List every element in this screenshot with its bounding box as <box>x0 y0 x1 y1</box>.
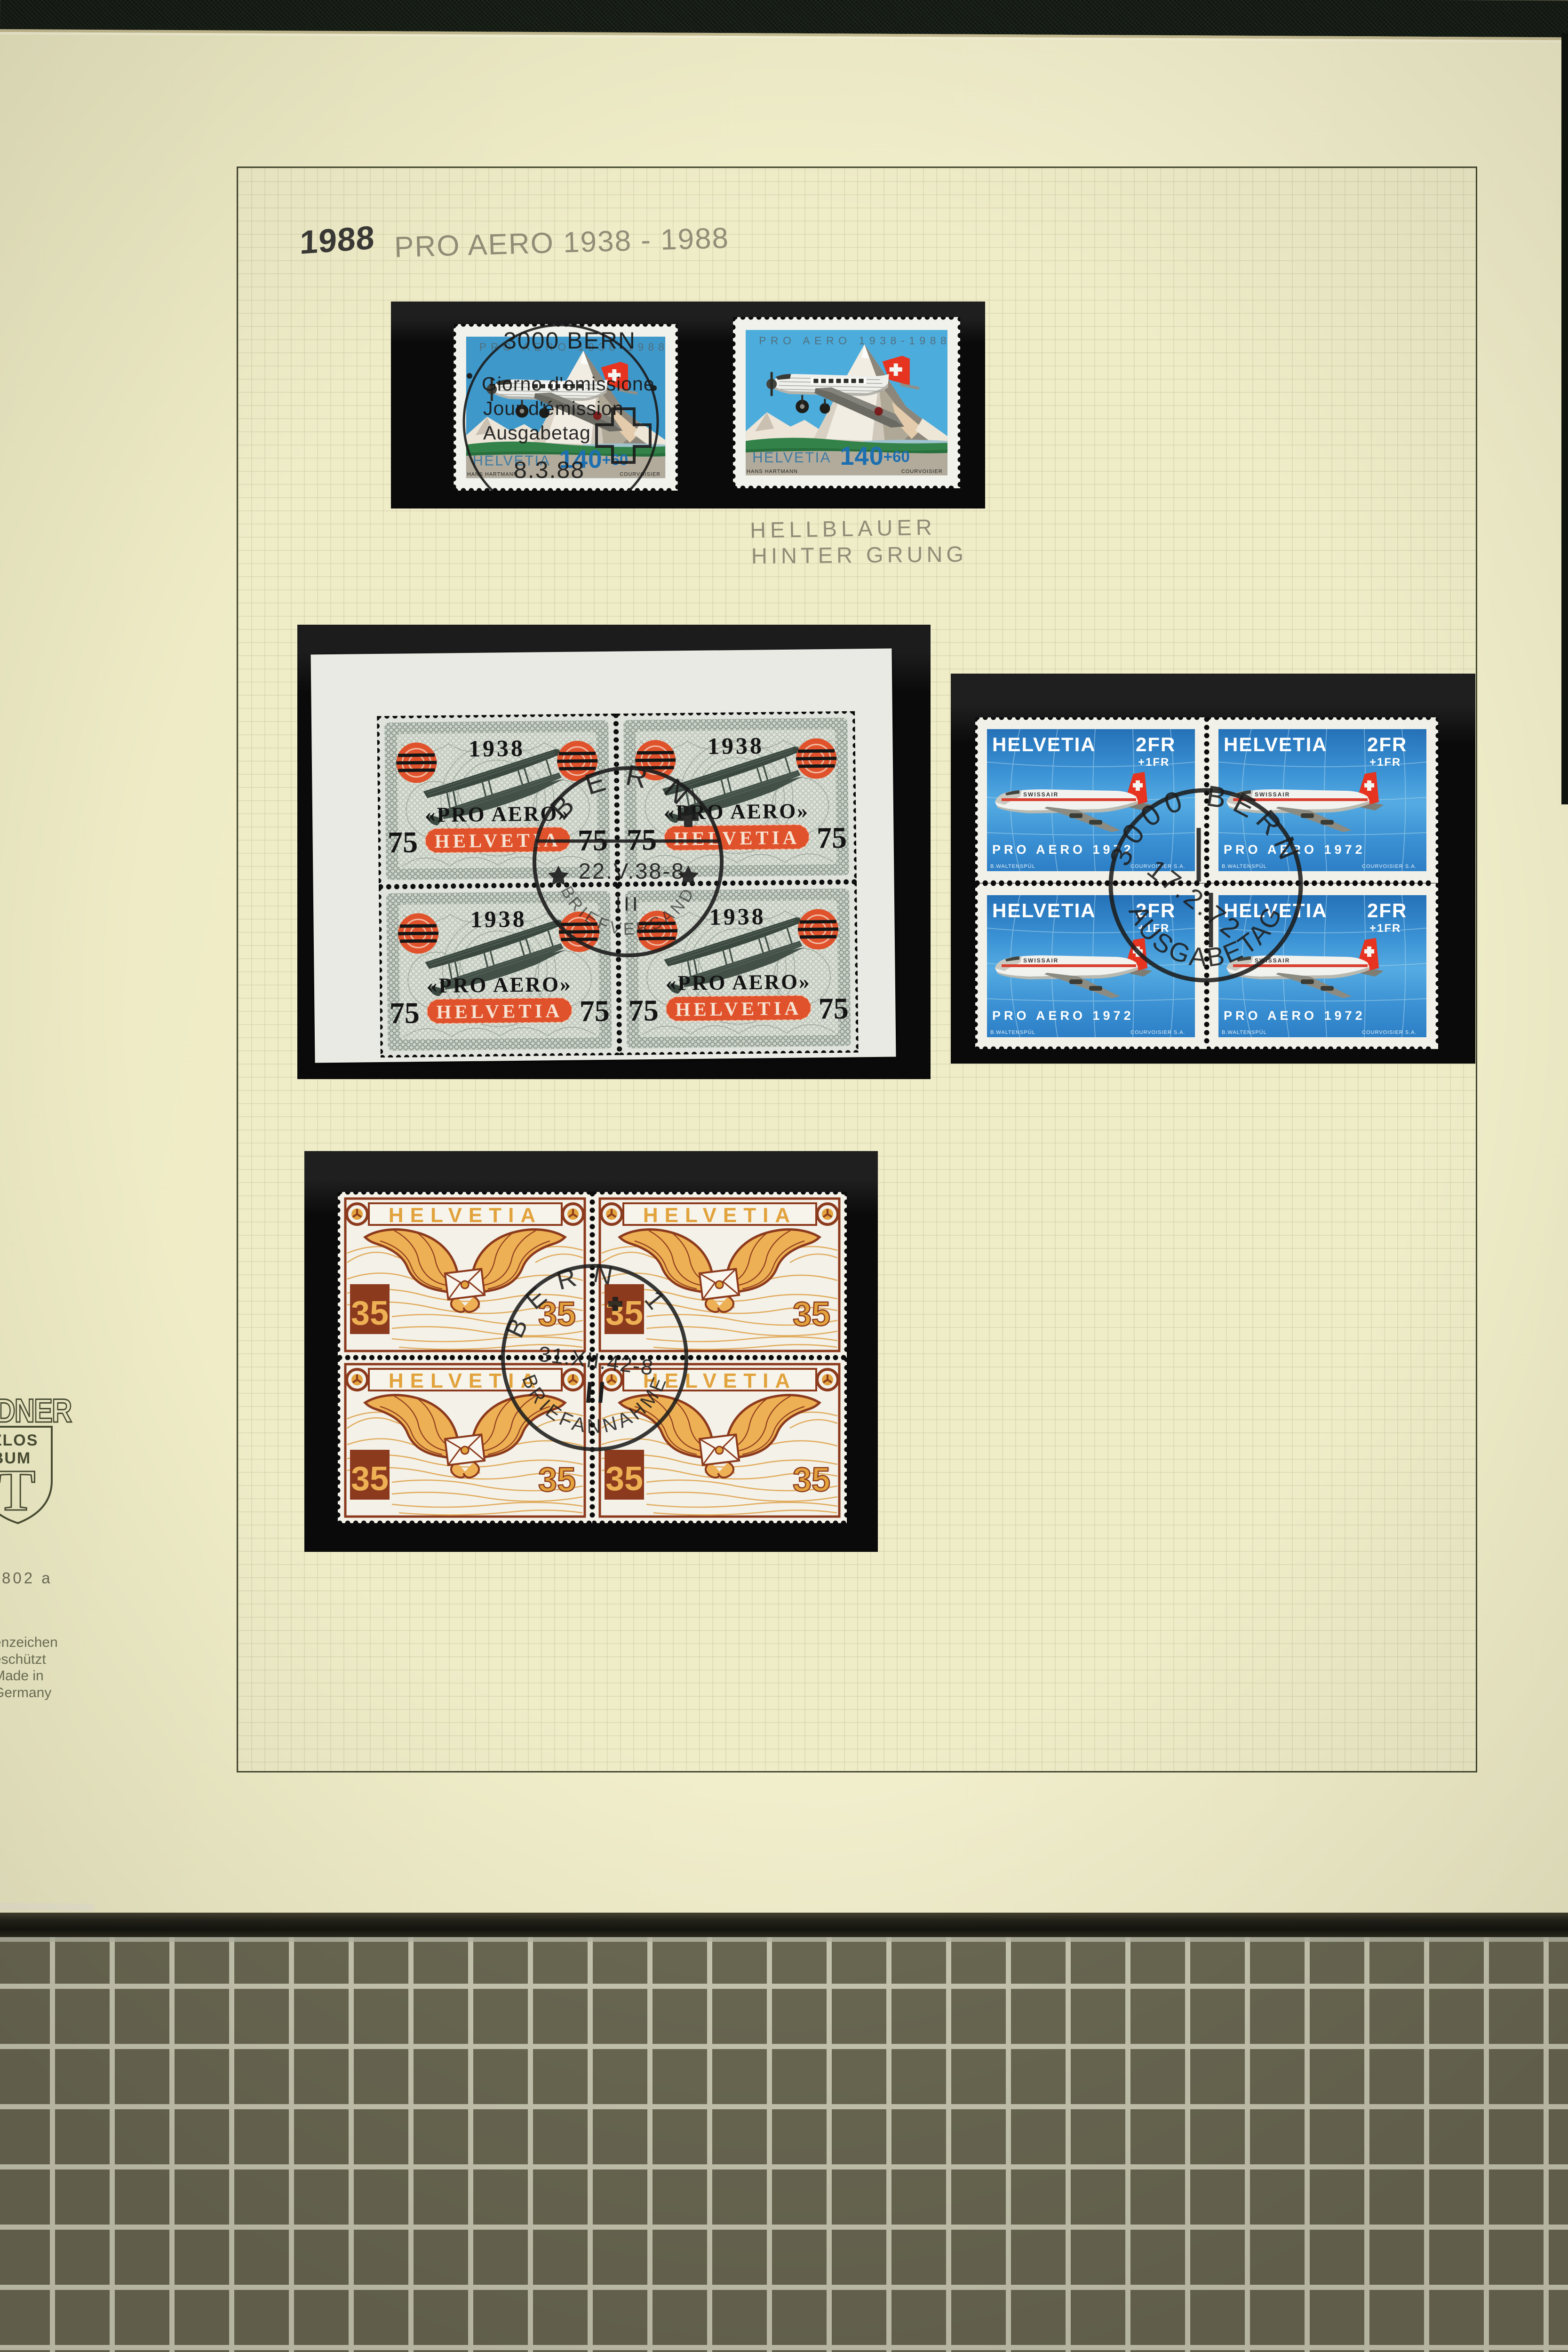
svg-text:Giorno d'emissione: Giorno d'emissione <box>482 373 655 395</box>
svg-text:8.3.88: 8.3.88 <box>514 457 585 483</box>
svg-text:LZLOS: LZLOS <box>0 1431 38 1449</box>
svg-text:22.V.38-8: 22.V.38-8 <box>579 858 685 883</box>
svg-text:BERN 1: BERN 1 <box>499 1258 680 1342</box>
svg-text:Ausgabetag: Ausgabetag <box>483 422 591 444</box>
svg-text:T: T <box>0 1458 35 1523</box>
svg-text:3000 BERN: 3000 BERN <box>1104 779 1308 870</box>
svg-text:3000 BERN: 3000 BERN <box>503 327 636 354</box>
svg-text:III: III <box>615 893 640 915</box>
svg-text:BRIEFANNAHME: BRIEFANNAHME <box>518 1371 672 1437</box>
svg-text:31.XII.42-8: 31.XII.42-8 <box>537 1342 655 1380</box>
svg-text:Jour d'émission: Jour d'émission <box>483 397 624 419</box>
